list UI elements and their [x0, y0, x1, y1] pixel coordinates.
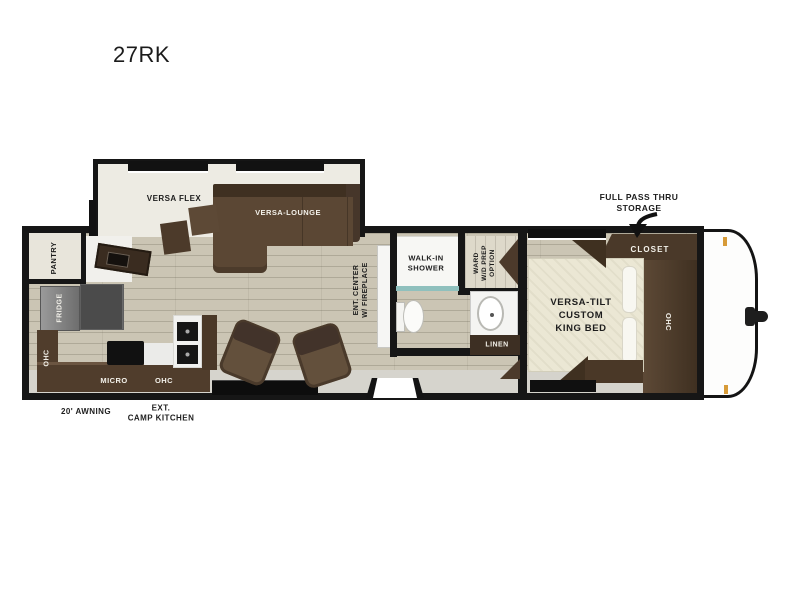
walk-in-shower	[396, 236, 459, 288]
cooktop	[107, 341, 144, 365]
slideout-side-window-icon	[89, 200, 96, 240]
floorplan: 27RK VERSA FLEX VERSA-LOUNGE PANTRY FRID…	[0, 0, 800, 600]
versa-flex-seat	[160, 220, 191, 254]
hitch-icon	[753, 311, 768, 322]
bath-sink	[477, 296, 504, 331]
versa-flex-table	[188, 204, 220, 236]
bed-pillow	[622, 317, 637, 364]
pantry-room	[29, 233, 86, 284]
page-title: 27RK	[113, 42, 170, 68]
awning-label: 20' AWNING	[61, 407, 111, 417]
shower-glass	[396, 286, 459, 291]
bedroom-ohc-cabinet	[643, 260, 697, 393]
camp-kitchen-label: EXT. CAMP KITCHEN	[128, 404, 195, 425]
bedroom-floor-mat	[530, 380, 596, 392]
bed-pillow	[622, 266, 637, 313]
versa-lounge-sofa	[213, 184, 360, 296]
bedroom-window-icon	[528, 229, 606, 240]
entry-door	[366, 378, 424, 398]
marker-light-icon	[724, 385, 728, 394]
bath-wall-left	[390, 233, 397, 357]
shower-ward-wall	[458, 233, 465, 295]
range-side-panel	[202, 315, 217, 370]
camp-kitchen-hatch	[212, 380, 318, 395]
pass-thru-arrow-icon	[627, 211, 661, 239]
kitchen-upper-cabinets	[80, 284, 124, 330]
fridge	[40, 286, 80, 331]
dishwasher	[144, 343, 175, 365]
toilet	[403, 300, 424, 333]
linen-cabinet	[470, 335, 520, 355]
slideout-window-icon	[128, 161, 208, 173]
marker-light-icon	[723, 237, 727, 246]
range-unit	[173, 315, 202, 368]
slideout-window-icon	[236, 161, 324, 173]
